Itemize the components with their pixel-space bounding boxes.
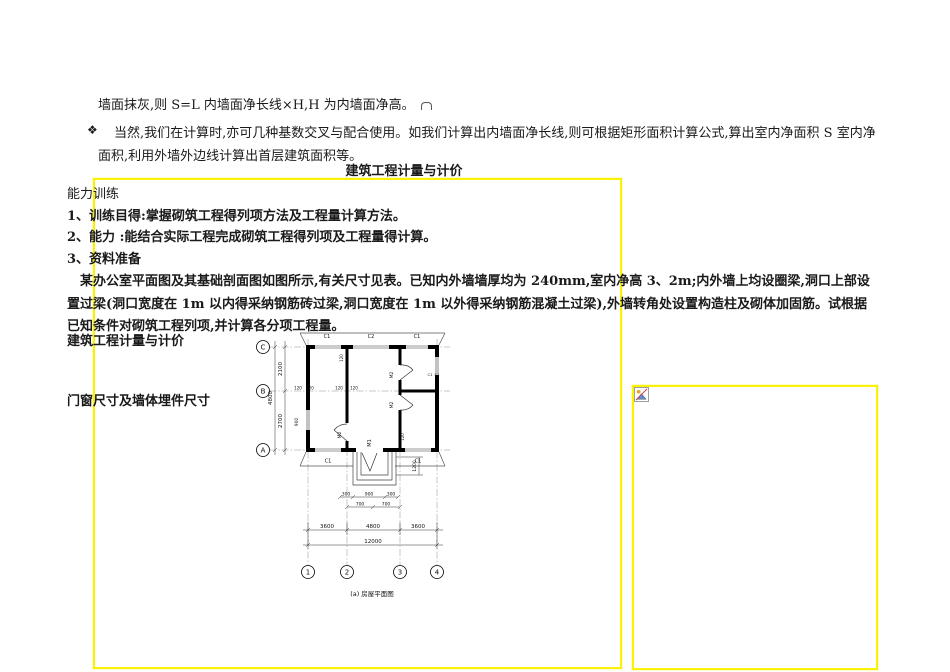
subtitle-door-window: 门窗尺寸及墙体埋件尺寸	[67, 393, 210, 411]
empty-box-glyph	[421, 102, 432, 110]
axis-label-b: B	[261, 388, 266, 396]
walls	[306, 345, 439, 452]
dim-2700: 2700	[278, 414, 284, 428]
dim-120: 120	[400, 433, 405, 441]
dim-900-steps: 900	[365, 492, 374, 498]
list-item-2: 2、能力 :能结合实际工程完成砌筑工程得列项及工程量得计算。	[67, 229, 436, 247]
axis-label-2: 2	[345, 569, 349, 577]
axis-label-1: 1	[306, 569, 310, 577]
intro-line1-text: 墙面抹灰,则 S=L 内墙面净长线×H,H 为内墙面净高。	[98, 98, 415, 113]
intro-paragraph: 当然,我们在计算时,亦可几种基数交叉与配合使用。如我们计算出内墙面净长线,则可根…	[98, 123, 877, 168]
axis-label-4: 4	[435, 569, 440, 577]
section-heading: 能力训练	[67, 186, 119, 204]
plan-caption: (a) 房屋平面图	[350, 589, 394, 598]
windows	[306, 345, 440, 453]
door-tag-m2: M2	[337, 431, 343, 438]
dim-4800-bottom: 4800	[366, 524, 380, 530]
dim-300-right: 300	[387, 492, 396, 498]
right-empty-frame[interactable]	[632, 385, 878, 670]
dim-120: 120	[339, 354, 344, 362]
window-tag-c1: C1	[427, 372, 433, 377]
window-tag-c1: C1	[415, 459, 422, 465]
window-tag-c1: C1	[325, 459, 332, 465]
list-item-3: 3、资料准备	[67, 251, 141, 269]
subtitle-costing: 建筑工程计量与计价	[67, 333, 184, 351]
dim-120: 120	[350, 386, 358, 391]
dim-3600-left: 3600	[320, 524, 334, 530]
problem-paragraph: 某办公室平面图及其基础剖面图如图所示,有关尺寸见表。已知内外墙墙厚均为 240m…	[67, 271, 879, 339]
floor-plan-drawing[interactable]: C B A 1 2 3 4 2100 2700 4800 3600 4800 3…	[243, 325, 473, 615]
list-item-1: 1、训练目得:掌握砌筑工程得列项方法及工程量计算方法。	[67, 208, 406, 226]
diamond-bullet-icon: ❖	[87, 123, 98, 137]
door-tag-m1: M1	[367, 439, 373, 447]
dim-120: 120	[294, 386, 302, 391]
dim-300-left: 300	[342, 492, 351, 498]
door-tag-m2: M2	[389, 371, 395, 378]
dim-12000: 12000	[364, 539, 382, 545]
door-tag-m2: M2	[389, 401, 395, 408]
dim-900-window: 900	[294, 418, 300, 427]
dim-120: 120	[335, 386, 343, 391]
dimension-lines	[273, 341, 443, 549]
dim-3600-right: 3600	[411, 524, 425, 530]
dim-2100: 2100	[278, 362, 284, 376]
document-page: 墙面抹灰,则 S=L 内墙面净长线×H,H 为内墙面净高。 ❖ 当然,我们在计算…	[0, 0, 950, 672]
axis-label-a: A	[261, 447, 266, 455]
dim-700-left: 700	[356, 502, 365, 508]
window-tag-c1: C1	[434, 372, 440, 377]
broken-image-icon[interactable]	[634, 387, 649, 402]
entry-steps	[353, 452, 396, 485]
dim-700-right: 700	[382, 502, 391, 508]
page-title: 建筑工程计量与计价	[93, 163, 715, 181]
intro-line1: 墙面抹灰,则 S=L 内墙面净长线×H,H 为内墙面净高。	[98, 97, 432, 115]
axis-label-c: C	[261, 344, 266, 352]
dim-120: 120	[306, 386, 314, 391]
dim-4800-left: 4800	[268, 391, 274, 405]
axis-label-3: 3	[398, 569, 402, 577]
